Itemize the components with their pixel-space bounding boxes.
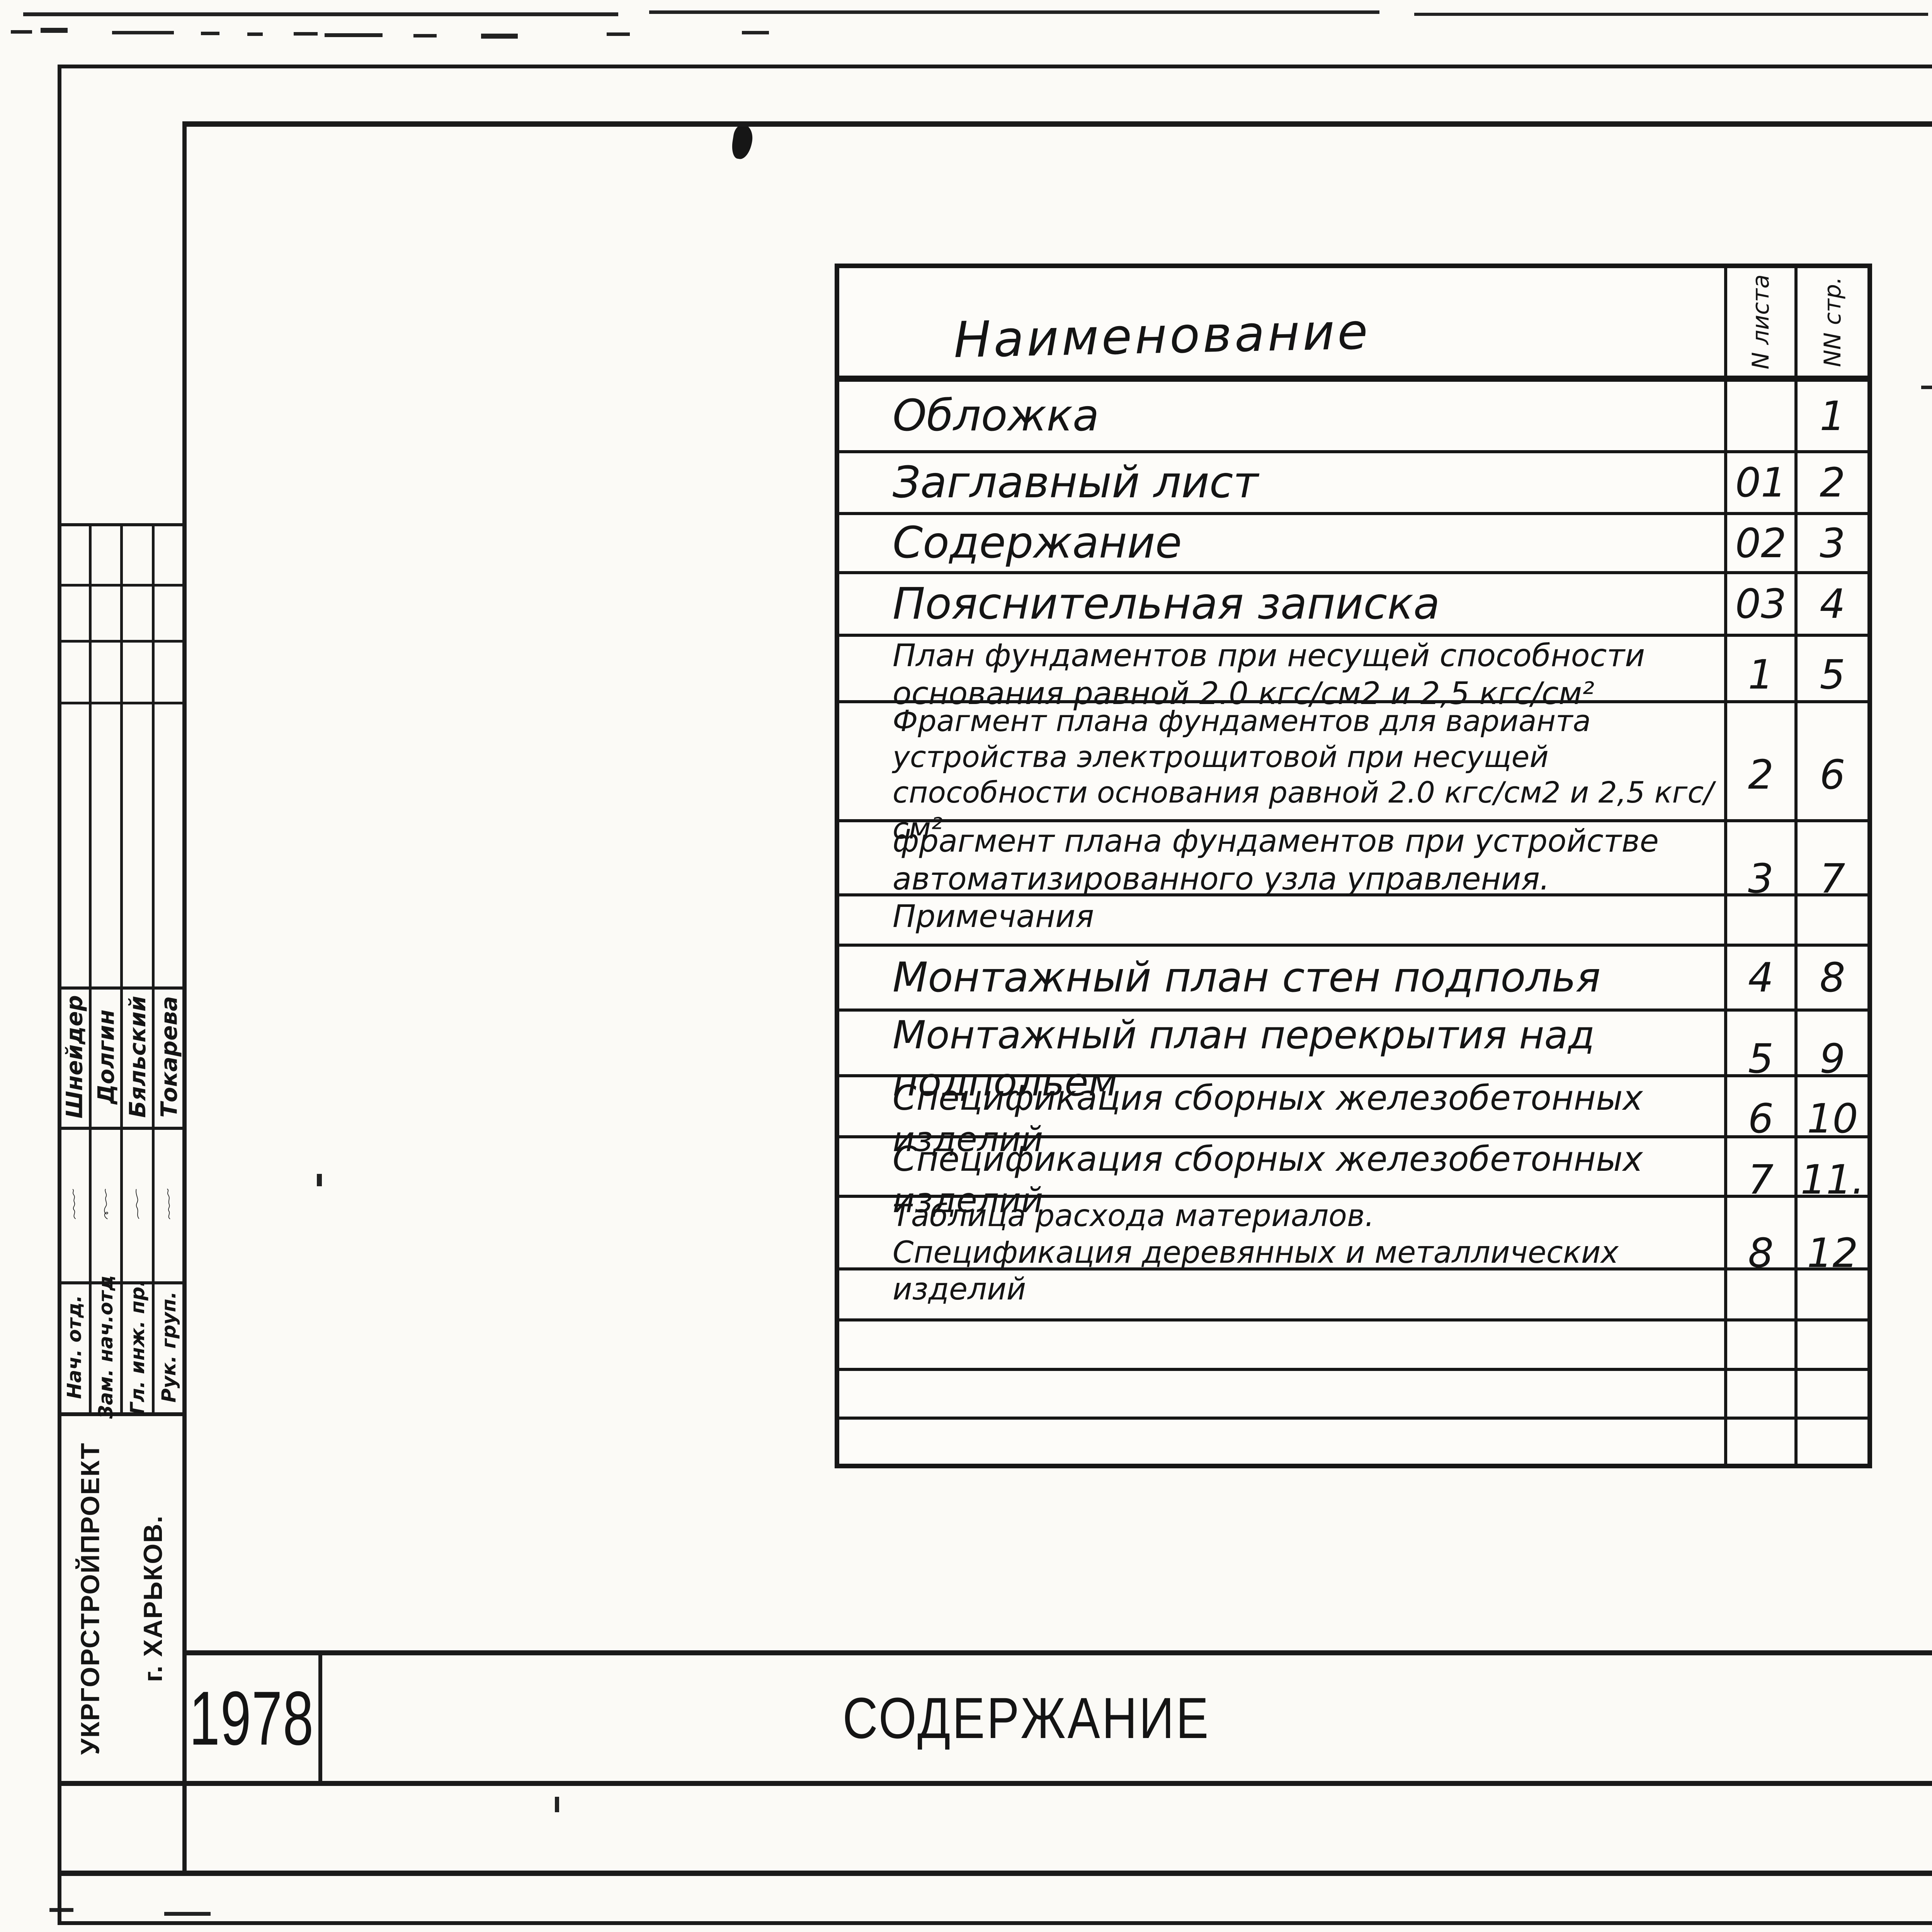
row-title bbox=[839, 1321, 1724, 1368]
signature bbox=[153, 1189, 184, 1220]
header-cell-name: Наименование bbox=[839, 268, 1724, 376]
scan-artifact-dash bbox=[294, 32, 318, 36]
approver-role: Зам. нач.отд bbox=[95, 1275, 117, 1419]
scan-artifact-dash bbox=[201, 32, 219, 35]
table-row: Монтажный план перекрытия над подпольем5… bbox=[839, 1012, 1867, 1077]
table-row: Обложка1 bbox=[839, 382, 1867, 453]
approver-name: Шнейдер bbox=[61, 995, 88, 1118]
row-title bbox=[839, 1270, 1724, 1318]
row-title: Пояснительная записка bbox=[839, 574, 1724, 634]
signature bbox=[59, 1189, 90, 1220]
row-page-number bbox=[1794, 1321, 1867, 1368]
signature bbox=[122, 1189, 153, 1220]
row-sheet-number: 02 bbox=[1724, 515, 1794, 571]
scan-artifact-dash bbox=[41, 28, 68, 33]
row-sheet-number bbox=[1724, 382, 1794, 450]
approver-name: Долгин bbox=[93, 1009, 119, 1104]
approver-role: Гл. инж. пр. bbox=[126, 1279, 149, 1415]
organization-city-box: г. ХАРЬКОВ. bbox=[122, 1416, 185, 1781]
row-page-number bbox=[1794, 896, 1867, 944]
table-row: План фундаментов при несущей способности… bbox=[839, 637, 1867, 703]
row-page-number: 3 bbox=[1794, 515, 1867, 571]
table-row bbox=[839, 896, 1867, 947]
scan-artifact-dash bbox=[481, 34, 518, 39]
approver-role: Нач. отд. bbox=[63, 1295, 86, 1399]
table-row bbox=[839, 1420, 1867, 1464]
approver-role: Рук. груп. bbox=[158, 1291, 180, 1403]
header-label-name: Наименование bbox=[953, 303, 1371, 369]
row-page-number: 5 bbox=[1794, 637, 1867, 712]
row-page-number: 1 bbox=[1794, 382, 1867, 450]
table-row: фрагмент плана фундаментов при устройств… bbox=[839, 822, 1867, 896]
header-cell-page-no: NN стр. bbox=[1794, 268, 1867, 376]
scan-artifact-dash bbox=[649, 10, 1379, 14]
header-label-sheet-no: N листа bbox=[1747, 274, 1774, 369]
row-sheet-number: 1 bbox=[1724, 637, 1794, 712]
signature bbox=[90, 1189, 121, 1220]
inner-frame-bottom bbox=[59, 1871, 1932, 1876]
table-row bbox=[839, 1270, 1867, 1321]
scan-artifact-dash bbox=[413, 34, 437, 37]
row-page-number: 2 bbox=[1794, 453, 1867, 512]
sheet-title-cell: СОДЕРЖАНИЕ bbox=[321, 1655, 1932, 1781]
scan-artifact-dash bbox=[23, 12, 618, 16]
table-row bbox=[839, 1371, 1867, 1420]
row-page-number bbox=[1794, 1371, 1867, 1417]
row-sheet-number bbox=[1724, 1371, 1794, 1417]
row-sheet-number: 03 bbox=[1724, 574, 1794, 634]
organization-city: г. ХАРЬКОВ. bbox=[138, 1515, 168, 1682]
row-title bbox=[839, 1371, 1724, 1417]
row-sheet-number bbox=[1724, 1270, 1794, 1318]
table-row: Спецификация сборных железобетонных изде… bbox=[839, 1077, 1867, 1138]
scanned-document-sheet: { "corner_sheet_number": "3", "stamp": {… bbox=[0, 0, 1932, 1932]
row-sheet-number: 4 bbox=[1724, 947, 1794, 1009]
approver-name: Токарева bbox=[156, 996, 182, 1117]
year-value: 1978 bbox=[189, 1674, 314, 1762]
row-page-number bbox=[1794, 1270, 1867, 1318]
table-row: Содержание023 bbox=[839, 515, 1867, 574]
row-sheet-number bbox=[1724, 896, 1794, 944]
row-title: Содержание bbox=[839, 515, 1724, 571]
scan-artifact-dash bbox=[607, 32, 630, 36]
scan-artifact-dash bbox=[11, 30, 32, 34]
row-title bbox=[839, 896, 1724, 944]
scan-artifact-dash bbox=[247, 32, 263, 36]
table-row: Таблица расхода материалов. Спецификация… bbox=[839, 1198, 1867, 1270]
table-row: Пояснительная записка034 bbox=[839, 574, 1867, 637]
inner-frame-top bbox=[185, 121, 1932, 127]
titleblock-bottom-line bbox=[59, 1781, 1932, 1786]
table-row bbox=[839, 1321, 1867, 1371]
approver-name: Бяльский bbox=[124, 996, 151, 1118]
row-page-number: 8 bbox=[1794, 947, 1867, 1009]
table-row: Монтажный план стен подполья48 bbox=[839, 947, 1867, 1012]
contents-table-header: Наименование N листа NN стр. bbox=[839, 268, 1867, 382]
table-row: Спецификация сборных железобетонных изде… bbox=[839, 1138, 1867, 1198]
row-title: Монтажный план стен подполья bbox=[839, 947, 1724, 1009]
approvals-block: ШнейдерНач. отд.ДолгинЗам. нач.отдБяльск… bbox=[59, 986, 185, 1412]
row-sheet-number bbox=[1724, 1420, 1794, 1464]
table-row: Заглавный лист012 bbox=[839, 453, 1867, 515]
year-cell: 1978 bbox=[185, 1655, 318, 1781]
sheet-title: СОДЕРЖАНИЕ bbox=[843, 1685, 1211, 1752]
row-sheet-number bbox=[1724, 1321, 1794, 1368]
header-label-page-no: NN стр. bbox=[1819, 277, 1846, 367]
contents-table: Наименование N листа NN стр. Обложка1Заг… bbox=[835, 264, 1872, 1468]
contents-table-body: Обложка1Заглавный лист012Содержание023По… bbox=[839, 382, 1867, 1464]
scan-artifact-dash bbox=[325, 33, 383, 37]
table-row: Фрагмент плана фундаментов для варианта … bbox=[839, 703, 1867, 822]
row-title: Обложка bbox=[839, 382, 1724, 450]
scan-artifact-dash bbox=[112, 31, 174, 34]
organization-box: УКРГОРСТРОЙПРОЕКТ bbox=[59, 1416, 122, 1781]
scan-artifact-dash bbox=[742, 31, 769, 34]
row-title: План фундаментов при несущей способности… bbox=[839, 637, 1724, 712]
titleblock-top-line bbox=[185, 1650, 1932, 1655]
row-sheet-number: 01 bbox=[1724, 453, 1794, 512]
row-title: Заглавный лист bbox=[839, 453, 1724, 512]
header-cell-sheet-no: N листа bbox=[1724, 268, 1794, 376]
scan-artifact-dash bbox=[1414, 13, 1928, 16]
row-page-number: 4 bbox=[1794, 574, 1867, 634]
organization-name: УКРГОРСТРОЙПРОЕКТ bbox=[75, 1442, 105, 1755]
row-page-number bbox=[1794, 1420, 1867, 1464]
row-title bbox=[839, 1420, 1724, 1464]
